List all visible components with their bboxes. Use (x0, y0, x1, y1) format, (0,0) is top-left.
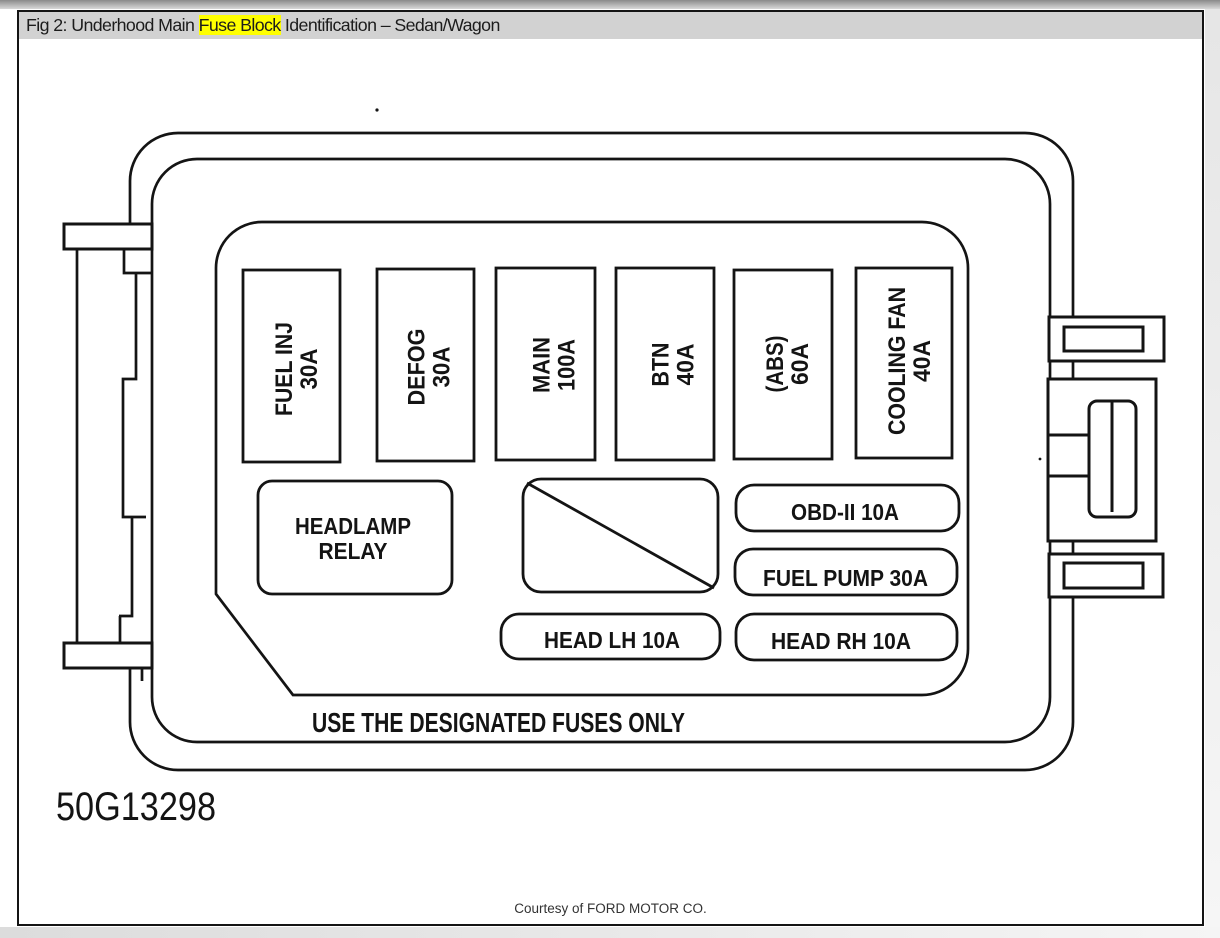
svg-text:MAIN100A: MAIN100A (529, 337, 581, 393)
svg-text:OBD-II 10A: OBD-II 10A (791, 499, 899, 525)
svg-text:FUEL PUMP 30A: FUEL PUMP 30A (763, 565, 928, 591)
svg-text:HEADLAMPRELAY: HEADLAMPRELAY (295, 513, 411, 564)
svg-text:BTN40A: BTN40A (648, 343, 700, 387)
svg-text:HEAD RH 10A: HEAD RH 10A (771, 628, 911, 654)
svg-text:COOLING FAN40A: COOLING FAN40A (884, 287, 936, 435)
svg-text:USE THE DESIGNATED FUSES ONLY: USE THE DESIGNATED FUSES ONLY (312, 707, 685, 738)
svg-text:(ABS)60A: (ABS)60A (762, 336, 814, 393)
svg-text:HEAD LH 10A: HEAD LH 10A (544, 627, 680, 653)
svg-text:50G13298: 50G13298 (56, 785, 216, 829)
svg-text:DEFOG30A: DEFOG30A (404, 329, 456, 406)
svg-text:FUEL INJ30A: FUEL INJ30A (271, 322, 323, 416)
